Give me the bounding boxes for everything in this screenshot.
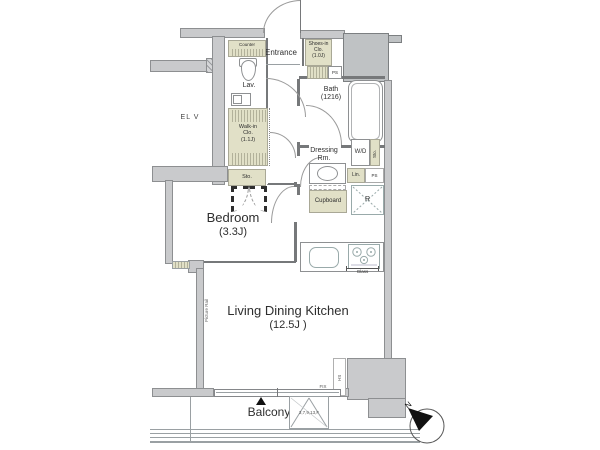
pillar-top-right	[343, 33, 389, 82]
bath-door-arc	[306, 105, 342, 145]
compass-north-label: N	[403, 400, 413, 411]
hs-label: HS	[337, 371, 342, 385]
partition-dressing-left-a	[297, 148, 300, 156]
walkin-label: Walk-in Clo. (1.1J)	[229, 124, 267, 143]
balcony-marker-icon	[256, 397, 266, 405]
partition-bedroom-top	[268, 183, 296, 185]
lav-label: Lav.	[232, 82, 266, 90]
ldk-label: Living Dining Kitchen (12.5J )	[213, 304, 363, 332]
cupboard-box: Cupboard	[309, 190, 347, 213]
bedroom-closet-door-right-arc	[249, 186, 267, 212]
fix-label: FIX	[314, 384, 332, 389]
bedroom-label: Bedroom (3.3J)	[183, 211, 283, 239]
bath-label: Bath (1216)	[312, 86, 350, 102]
partition-bedroom-right-b	[294, 222, 297, 262]
bedroom-closet-door-left-arc	[231, 186, 249, 212]
partition-bedroom-bottom	[204, 261, 296, 263]
kitchen-sink-icon	[309, 247, 339, 268]
pipe-space-top-label: PS	[329, 70, 341, 75]
wall-bedroom-left	[165, 180, 173, 264]
linen-label: Lin.	[348, 173, 364, 179]
wall-ldk-left	[196, 268, 204, 392]
linen-box: Lin.	[347, 168, 365, 183]
washer-dryer-box: W/D	[351, 139, 370, 166]
dressing-label: Dressing Rm.	[303, 147, 345, 163]
entrance-step-line	[266, 64, 300, 65]
evacuation-hatch-label: 3,7,9,13,F	[290, 410, 328, 415]
shoes-closet: Shoes-in Clo. (1.0J)	[305, 39, 332, 66]
fridge-label: R	[352, 196, 383, 204]
washbasin-bowl-icon	[317, 166, 338, 181]
wd-storage-strip: Sto.	[370, 139, 380, 166]
elevator-label: EL V	[176, 114, 204, 122]
wall-top-right	[300, 30, 345, 39]
pillar-tab	[388, 35, 402, 43]
picture-rail-label: Picture Rail	[204, 288, 209, 332]
shoes-closet-label: Shoes-in Clo. (1.0J)	[306, 42, 331, 59]
wd-storage-label: Sto.	[372, 144, 377, 163]
walkin-shelf-top	[230, 110, 266, 122]
railing-line-1	[150, 429, 420, 430]
floorplan: Entrance Shoes-in Clo. (1.0J) PS Counter…	[0, 0, 600, 450]
toilet-bowl-icon	[241, 60, 256, 81]
entrance-door-leaf	[300, 0, 301, 33]
pipe-space-mid: PS	[365, 168, 384, 183]
railing-line-3	[150, 437, 420, 438]
storage-label: Sto.	[229, 174, 265, 180]
compass-icon: N	[400, 398, 452, 450]
pipe-space-top: PS	[328, 66, 342, 79]
walkin-shelf-bottom	[230, 153, 266, 165]
wall-left-unit	[212, 36, 225, 185]
hall-door-arc	[266, 78, 306, 117]
evacuation-hatch: 3,7,9,13,F	[289, 396, 329, 429]
lav-counter: Counter	[228, 40, 266, 57]
wall-bottom-right-a	[347, 358, 406, 400]
wall-corridor	[152, 166, 228, 182]
cupboard-label: Cupboard	[310, 198, 346, 205]
washer-dryer-label: W/D	[352, 149, 369, 156]
wall-bottom-left-stub	[152, 388, 214, 397]
shoes-closet-lower	[307, 66, 328, 79]
lav-counter-label: Counter	[229, 42, 265, 47]
bedroom-window	[172, 261, 190, 269]
railing-line-4	[150, 441, 420, 443]
glass-label: Glass	[346, 269, 379, 274]
wall-corridor-band	[150, 60, 207, 72]
lav-counter-hatch	[230, 49, 264, 56]
wall-right	[384, 80, 392, 378]
balcony-door-center-tick	[277, 388, 278, 397]
bathtub-inner-icon	[351, 83, 380, 140]
walkin-door-arc	[270, 132, 296, 158]
walkin-closet: Walk-in Clo. (1.1J)	[228, 108, 268, 166]
entrance-door-arc	[263, 0, 301, 33]
fridge-space: R	[351, 185, 384, 215]
pipe-space-mid-label: PS	[366, 173, 383, 178]
railing-line-2	[150, 433, 420, 434]
lav-sink-basin-icon	[233, 95, 242, 104]
storage-box: Sto.	[228, 169, 266, 186]
stove-icon	[348, 244, 380, 269]
